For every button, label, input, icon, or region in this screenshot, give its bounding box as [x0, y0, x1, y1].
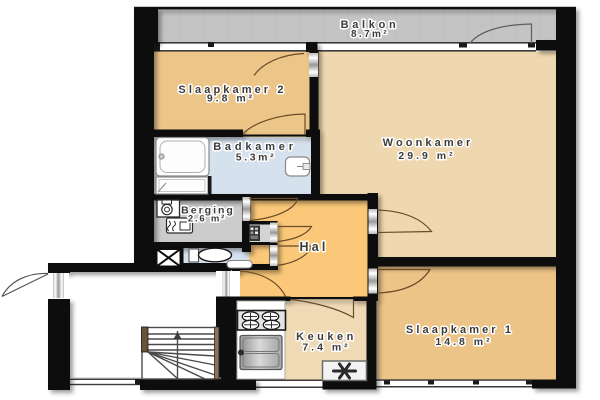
svg-text:9.8 m²: 9.8 m²	[207, 93, 255, 105]
svg-text:29.9 m²: 29.9 m²	[398, 150, 455, 162]
svg-text:8.7m²: 8.7m²	[351, 29, 389, 40]
svg-text:14.8 m²: 14.8 m²	[435, 336, 492, 348]
svg-text:Woonkamer: Woonkamer	[383, 137, 474, 149]
svg-text:2.6 m²: 2.6 m²	[188, 214, 226, 225]
svg-text:7.4 m²: 7.4 m²	[302, 342, 350, 354]
svg-text:5.3m²: 5.3m²	[236, 152, 276, 164]
svg-text:Hal: Hal	[299, 240, 328, 254]
svg-text:Slaapkamer 1: Slaapkamer 1	[406, 324, 514, 336]
